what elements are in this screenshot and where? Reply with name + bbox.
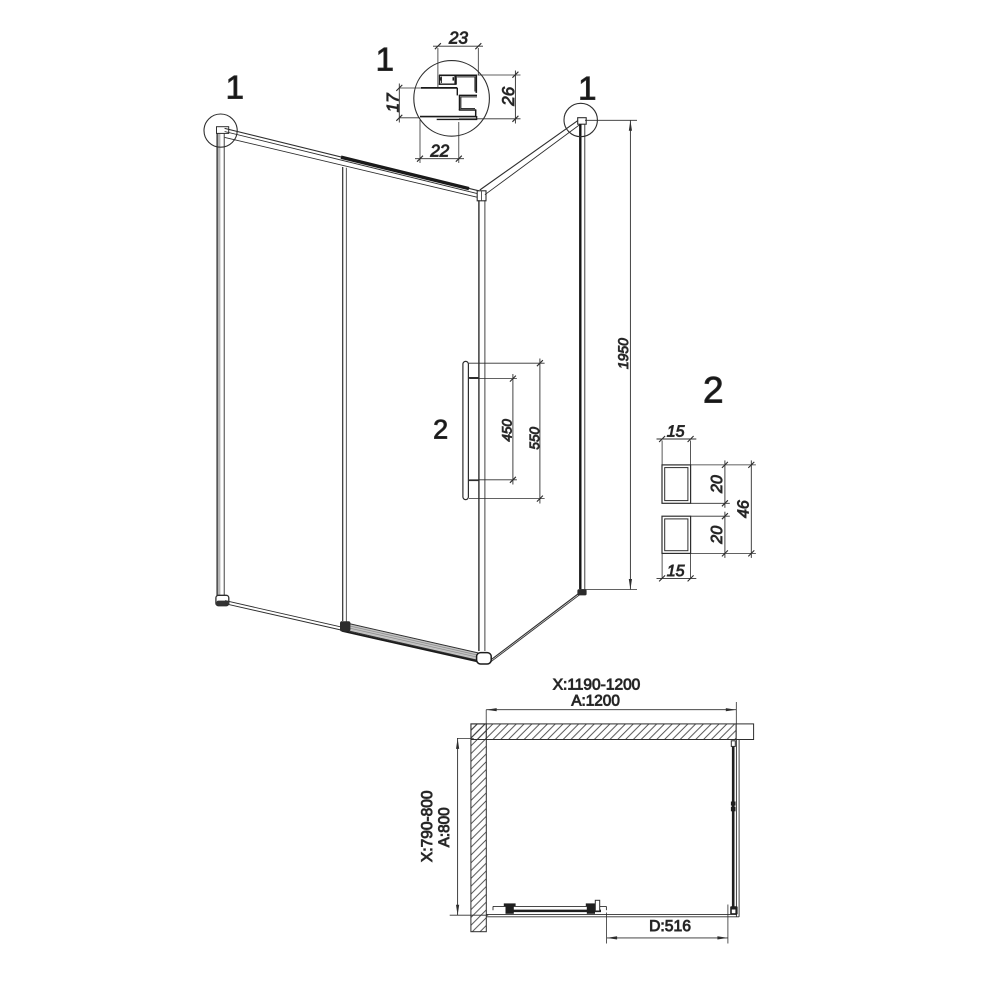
svg-text:17: 17 <box>383 93 402 112</box>
svg-text:1: 1 <box>578 70 596 107</box>
svg-text:20: 20 <box>709 526 726 545</box>
svg-text:1950: 1950 <box>615 338 631 369</box>
svg-text:46: 46 <box>736 500 753 518</box>
svg-text:15: 15 <box>667 424 685 441</box>
svg-text:2: 2 <box>433 414 448 444</box>
svg-text:15: 15 <box>667 563 685 580</box>
svg-text:22: 22 <box>429 141 449 160</box>
svg-text:X:1190-1200: X:1190-1200 <box>553 677 641 694</box>
svg-text:1: 1 <box>226 69 244 106</box>
svg-text:2: 2 <box>703 370 724 411</box>
svg-text:A:800: A:800 <box>436 807 453 847</box>
svg-text:26: 26 <box>499 86 518 106</box>
svg-text:A:1200: A:1200 <box>571 692 619 709</box>
svg-text:1: 1 <box>376 41 394 78</box>
svg-text:23: 23 <box>448 29 468 48</box>
svg-text:D:516: D:516 <box>649 918 691 935</box>
svg-text:20: 20 <box>709 475 726 494</box>
svg-text:450: 450 <box>499 419 514 442</box>
svg-text:550: 550 <box>527 427 542 450</box>
svg-text:X:790-800: X:790-800 <box>419 790 436 862</box>
